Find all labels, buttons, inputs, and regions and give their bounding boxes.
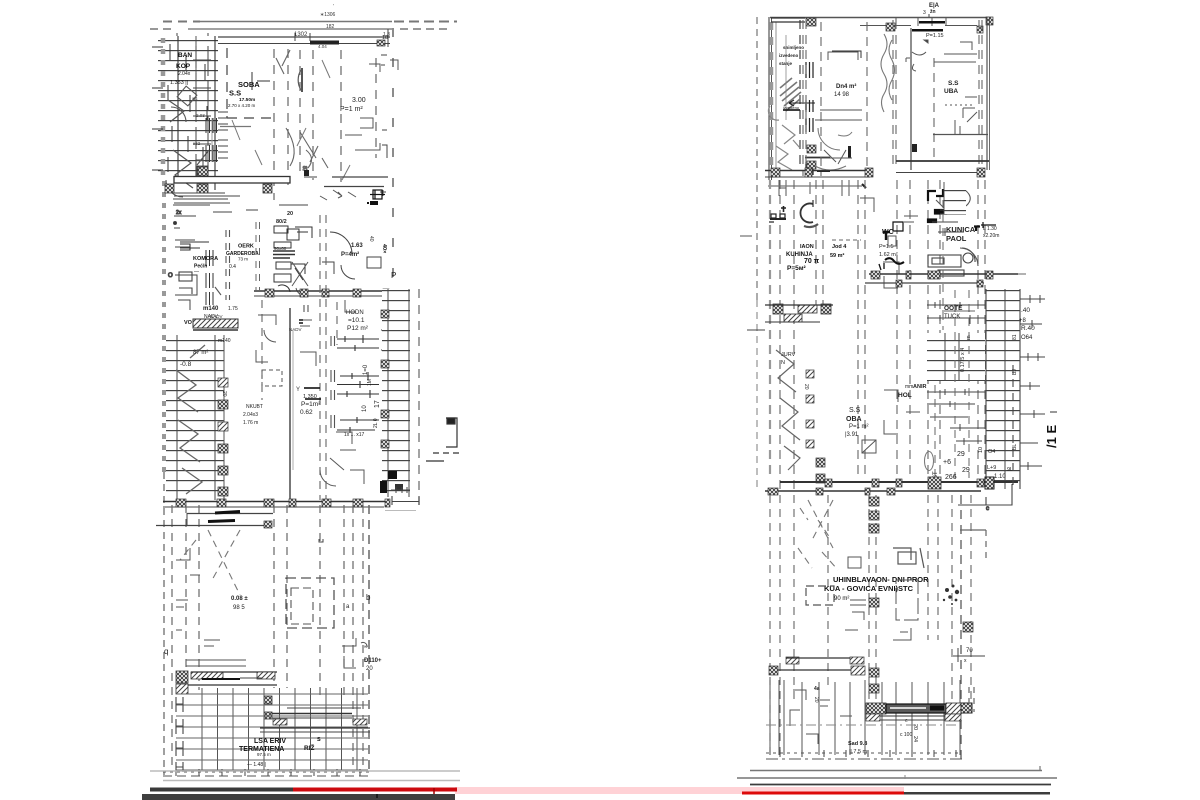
svg-text:L 1.30: L 1.30 bbox=[983, 226, 997, 232]
svg-text:P=4m²: P=4m² bbox=[341, 251, 359, 258]
svg-text:c: c bbox=[986, 506, 989, 512]
svg-text:+8: +8 bbox=[1019, 318, 1027, 324]
svg-text:e: e bbox=[905, 718, 908, 724]
svg-text:1.62 m²: 1.62 m² bbox=[879, 252, 898, 258]
svg-text:59 m²: 59 m² bbox=[830, 252, 845, 259]
svg-text:20: 20 bbox=[803, 384, 809, 390]
svg-text:20: 20 bbox=[287, 211, 293, 217]
svg-text:24: 24 bbox=[912, 736, 918, 742]
svg-text:RIŽ: RIŽ bbox=[304, 743, 315, 752]
svg-text:1x ... x17: 1x ... x17 bbox=[344, 432, 365, 438]
svg-text:182: 182 bbox=[326, 24, 335, 30]
svg-text:O64: O64 bbox=[1021, 335, 1033, 341]
svg-text:73 m: 73 m bbox=[238, 257, 248, 262]
svg-text:1.10: 1.10 bbox=[994, 474, 1006, 480]
svg-text:UHINBLAVAON- DNI PROR: UHINBLAVAON- DNI PROR bbox=[833, 575, 929, 584]
svg-text:m140: m140 bbox=[203, 306, 219, 312]
svg-text:Đ110+: Đ110+ bbox=[364, 658, 382, 664]
svg-text:NADV: NADV bbox=[204, 314, 219, 320]
svg-text:KUNICA: KUNICA bbox=[946, 225, 976, 234]
svg-text:18: 18 bbox=[382, 35, 388, 41]
svg-text:izvedeno: izvedeno bbox=[783, 105, 800, 110]
svg-text:q: q bbox=[164, 647, 168, 656]
svg-text:OBA: OBA bbox=[846, 416, 862, 423]
svg-text:2.04x3: 2.04x3 bbox=[243, 412, 258, 418]
svg-text:O: O bbox=[168, 273, 173, 279]
svg-text:BAN: BAN bbox=[178, 52, 192, 59]
svg-text:14 98: 14 98 bbox=[834, 92, 850, 98]
svg-text:1M: 1M bbox=[367, 379, 373, 386]
svg-text:NKUBT: NKUBT bbox=[246, 404, 263, 410]
svg-text:SOBA: SOBA bbox=[238, 80, 260, 89]
svg-text:Sad 9.8: Sad 9.8 bbox=[848, 741, 867, 747]
svg-text:/1 E: /1 E bbox=[1044, 425, 1059, 448]
svg-text:Dn4 m²: Dn4 m² bbox=[836, 83, 856, 90]
svg-text:PAOL: PAOL bbox=[946, 234, 967, 243]
svg-text:97.5 m: 97.5 m bbox=[257, 752, 271, 757]
svg-text:O4: O4 bbox=[988, 449, 995, 455]
svg-text:2x: 2x bbox=[176, 210, 182, 216]
svg-text:IAON: IAON bbox=[800, 244, 814, 250]
svg-text:— 1.48 |: — 1.48 | bbox=[247, 762, 266, 768]
svg-text:1.75: 1.75 bbox=[228, 306, 238, 312]
svg-text:wc: wc bbox=[192, 96, 198, 101]
svg-text:40: 40 bbox=[368, 236, 374, 242]
svg-text:VO: VO bbox=[184, 320, 193, 326]
svg-text:S.S: S.S bbox=[229, 89, 241, 98]
svg-text:KOP: KOP bbox=[176, 63, 191, 70]
svg-text:∞: ∞ bbox=[364, 644, 368, 650]
svg-text:JURV: JURV bbox=[781, 352, 796, 358]
svg-text:x2.20m: x2.20m bbox=[983, 233, 999, 239]
svg-text:’: ’ bbox=[333, 4, 334, 10]
svg-text:29: 29 bbox=[957, 451, 965, 458]
svg-text:ANIR: ANIR bbox=[913, 384, 926, 390]
svg-text:P=1 m²: P=1 m² bbox=[340, 106, 363, 113]
svg-text:P=1 m²: P=1 m² bbox=[849, 424, 869, 430]
svg-text:80/2: 80/2 bbox=[276, 219, 287, 225]
svg-text:29: 29 bbox=[962, 467, 970, 474]
svg-text:P=5м²: P=5м² bbox=[787, 265, 807, 272]
svg-text:70: 70 bbox=[966, 648, 973, 654]
svg-text:1.76 m: 1.76 m bbox=[243, 420, 258, 426]
svg-text:L+9: L+9 bbox=[987, 465, 996, 471]
svg-text:m140: m140 bbox=[218, 338, 231, 344]
svg-text:0.17/5 x 4: 0.17/5 x 4 bbox=[960, 348, 966, 372]
svg-text:20: 20 bbox=[366, 666, 373, 672]
svg-text:2L 0: 2L 0 bbox=[373, 418, 379, 428]
svg-text:0.4: 0.4 bbox=[229, 264, 236, 270]
svg-text:1.63: 1.63 bbox=[351, 243, 363, 249]
svg-text:R.40: R.40 bbox=[1021, 325, 1035, 332]
svg-text:stanje: stanje bbox=[779, 61, 793, 66]
svg-text:20: 20 bbox=[813, 697, 819, 703]
svg-text:TUCK: TUCK bbox=[944, 314, 960, 320]
svg-text:Y: Y bbox=[296, 387, 300, 393]
svg-text:4a: 4a bbox=[814, 686, 820, 692]
svg-text:1=0: 1=0 bbox=[363, 364, 369, 375]
svg-text:17: 17 bbox=[374, 400, 381, 408]
svg-text:Jod 4: Jod 4 bbox=[832, 244, 847, 250]
svg-text:P: P bbox=[391, 271, 396, 280]
svg-text:2.04x: 2.04x bbox=[178, 71, 191, 77]
svg-text:2.70 x 4.20 m: 2.70 x 4.20 m bbox=[228, 103, 256, 108]
svg-text:m: m bbox=[966, 335, 972, 340]
svg-text:-0.8: -0.8 bbox=[180, 361, 192, 368]
svg-text:P=1.15: P=1.15 bbox=[926, 33, 944, 39]
svg-text:3.00: 3.00 bbox=[352, 97, 366, 104]
svg-text:1.353 ||: 1.353 || bbox=[170, 80, 188, 86]
svg-text:70 π: 70 π bbox=[804, 258, 820, 265]
svg-text:KUA - GOVICA EVNI)STC: KUA - GOVICA EVNI)STC bbox=[824, 584, 914, 593]
svg-text:P=1m²: P=1m² bbox=[301, 401, 321, 408]
svg-text:izvedeno: izvedeno bbox=[779, 53, 799, 58]
svg-text:N: N bbox=[781, 360, 785, 366]
svg-text:0.08 ±: 0.08 ± bbox=[231, 596, 248, 602]
svg-text:81: 81 bbox=[1012, 334, 1018, 340]
svg-text:S.S: S.S bbox=[948, 80, 959, 87]
svg-text:P12 m²: P12 m² bbox=[347, 325, 369, 332]
svg-text:UBA: UBA bbox=[944, 88, 958, 95]
svg-text:20: 20 bbox=[221, 391, 227, 397]
svg-text:3: 3 bbox=[923, 10, 926, 16]
svg-text:snimljeno: snimljeno bbox=[783, 45, 804, 50]
svg-text:žn: žn bbox=[930, 9, 936, 15]
svg-text:.40: .40 bbox=[1021, 307, 1030, 314]
svg-text:90 m²: 90 m² bbox=[834, 596, 849, 602]
svg-text:∗1306: ∗1306 bbox=[320, 12, 336, 18]
svg-text:40×: 40× bbox=[381, 244, 387, 253]
svg-text:4.04: 4.04 bbox=[318, 44, 327, 49]
svg-text:S.S: S.S bbox=[849, 407, 861, 414]
svg-text:10: 10 bbox=[362, 405, 368, 412]
svg-text:LSA ERIV: LSA ERIV bbox=[254, 738, 286, 745]
svg-text:HODN: HODN bbox=[346, 310, 364, 316]
svg-text:c 100: c 100 bbox=[900, 732, 912, 738]
svg-text:10: 10 bbox=[978, 447, 984, 453]
svg-text:—: — bbox=[194, 269, 199, 275]
svg-text:HOL: HOL bbox=[898, 392, 912, 399]
svg-text:KOMORA: KOMORA bbox=[193, 256, 218, 262]
svg-text:S: S bbox=[317, 737, 321, 743]
svg-text:NADV: NADV bbox=[289, 327, 302, 332]
svg-text:|3.91: |3.91 bbox=[845, 432, 859, 438]
svg-text:1302: 1302 bbox=[294, 32, 308, 38]
svg-text:+6: +6 bbox=[943, 459, 951, 466]
svg-text:90x60: 90x60 bbox=[274, 246, 287, 251]
svg-text:|| 7.5 m: || 7.5 m bbox=[849, 749, 868, 755]
svg-text:87 m²: 87 m² bbox=[193, 350, 208, 356]
svg-text:266: 266 bbox=[945, 474, 957, 481]
svg-text:=10.1: =10.1 bbox=[348, 317, 365, 324]
svg-text:b: b bbox=[366, 593, 371, 602]
svg-text:0.62: 0.62 bbox=[300, 409, 313, 416]
svg-text:P=1.5: P=1.5 bbox=[879, 244, 894, 250]
svg-text:9L: 9L bbox=[1007, 467, 1013, 473]
svg-text:98 5: 98 5 bbox=[233, 605, 245, 611]
svg-text:OERK: OERK bbox=[238, 244, 254, 250]
